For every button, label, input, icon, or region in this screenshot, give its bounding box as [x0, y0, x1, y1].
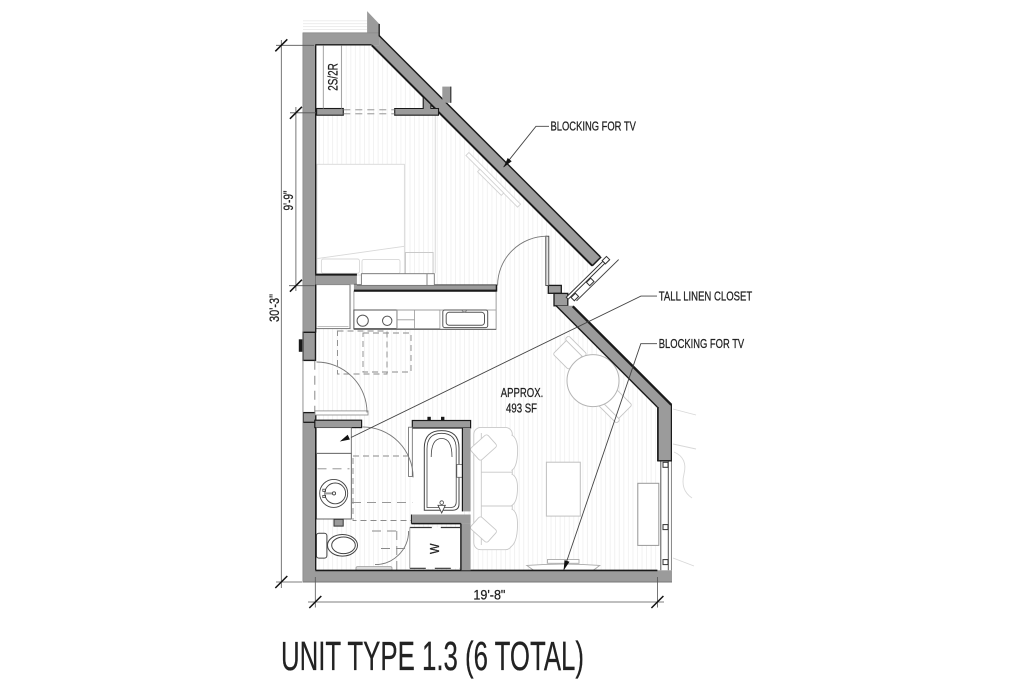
svg-text:9'-9": 9'-9" — [281, 190, 296, 210]
svg-text:30'-3": 30'-3" — [267, 294, 282, 322]
svg-text:UNIT TYPE 1.3 (6 TOTAL): UNIT TYPE 1.3 (6 TOTAL) — [281, 633, 584, 679]
svg-text:W: W — [427, 543, 442, 554]
svg-text:BLOCKING FOR TV: BLOCKING FOR TV — [551, 120, 637, 134]
svg-text:19'-8": 19'-8" — [473, 587, 505, 602]
svg-text:TALL LINEN CLOSET: TALL LINEN CLOSET — [659, 289, 753, 303]
svg-text:2S/2R: 2S/2R — [325, 63, 340, 91]
svg-text:APPROX.: APPROX. — [501, 385, 544, 400]
svg-text:493 SF: 493 SF — [506, 401, 537, 416]
svg-text:BLOCKING FOR TV: BLOCKING FOR TV — [659, 337, 745, 351]
